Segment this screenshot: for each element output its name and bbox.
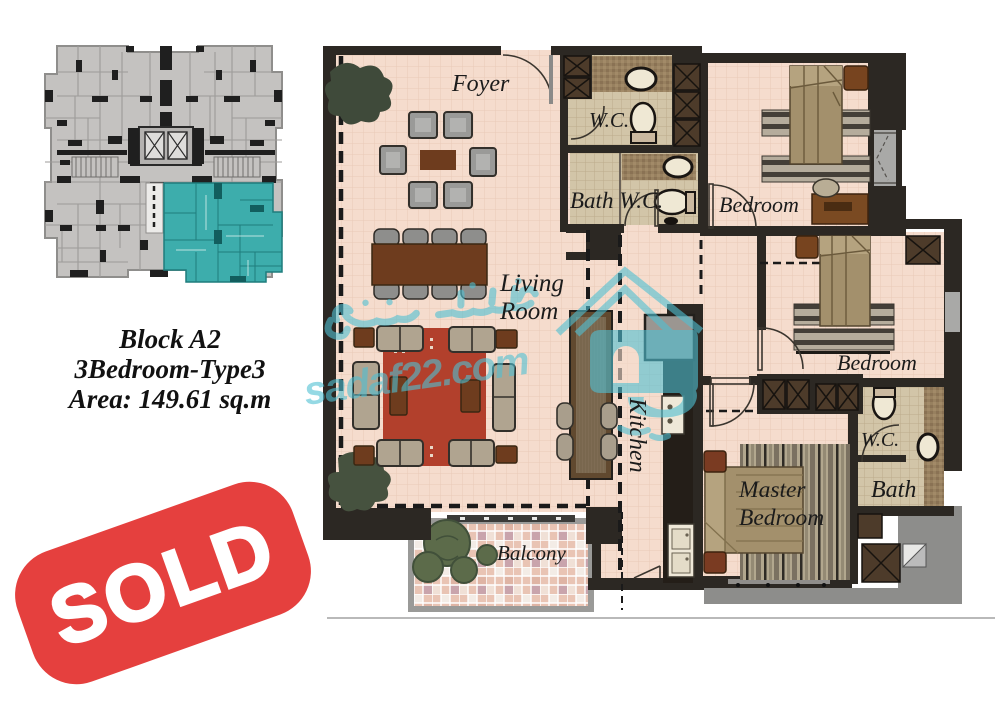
svg-text:Room: Room — [499, 298, 558, 325]
svg-text:Bedroom: Bedroom — [719, 192, 799, 217]
svg-text:W.C.: W.C. — [589, 108, 629, 132]
svg-text:Bath: Bath — [871, 477, 916, 503]
svg-text:Bath W.C.: Bath W.C. — [570, 188, 663, 213]
svg-text:Foyer: Foyer — [451, 71, 510, 97]
svg-text:W.C.: W.C. — [861, 429, 899, 451]
svg-text:Bedroom: Bedroom — [837, 350, 917, 375]
svg-text:Living: Living — [499, 270, 564, 297]
svg-text:Master: Master — [738, 477, 806, 503]
svg-text:Kitchen: Kitchen — [624, 397, 650, 473]
svg-text:Balcony: Balcony — [497, 541, 566, 565]
svg-text:Bedroom: Bedroom — [739, 505, 824, 531]
